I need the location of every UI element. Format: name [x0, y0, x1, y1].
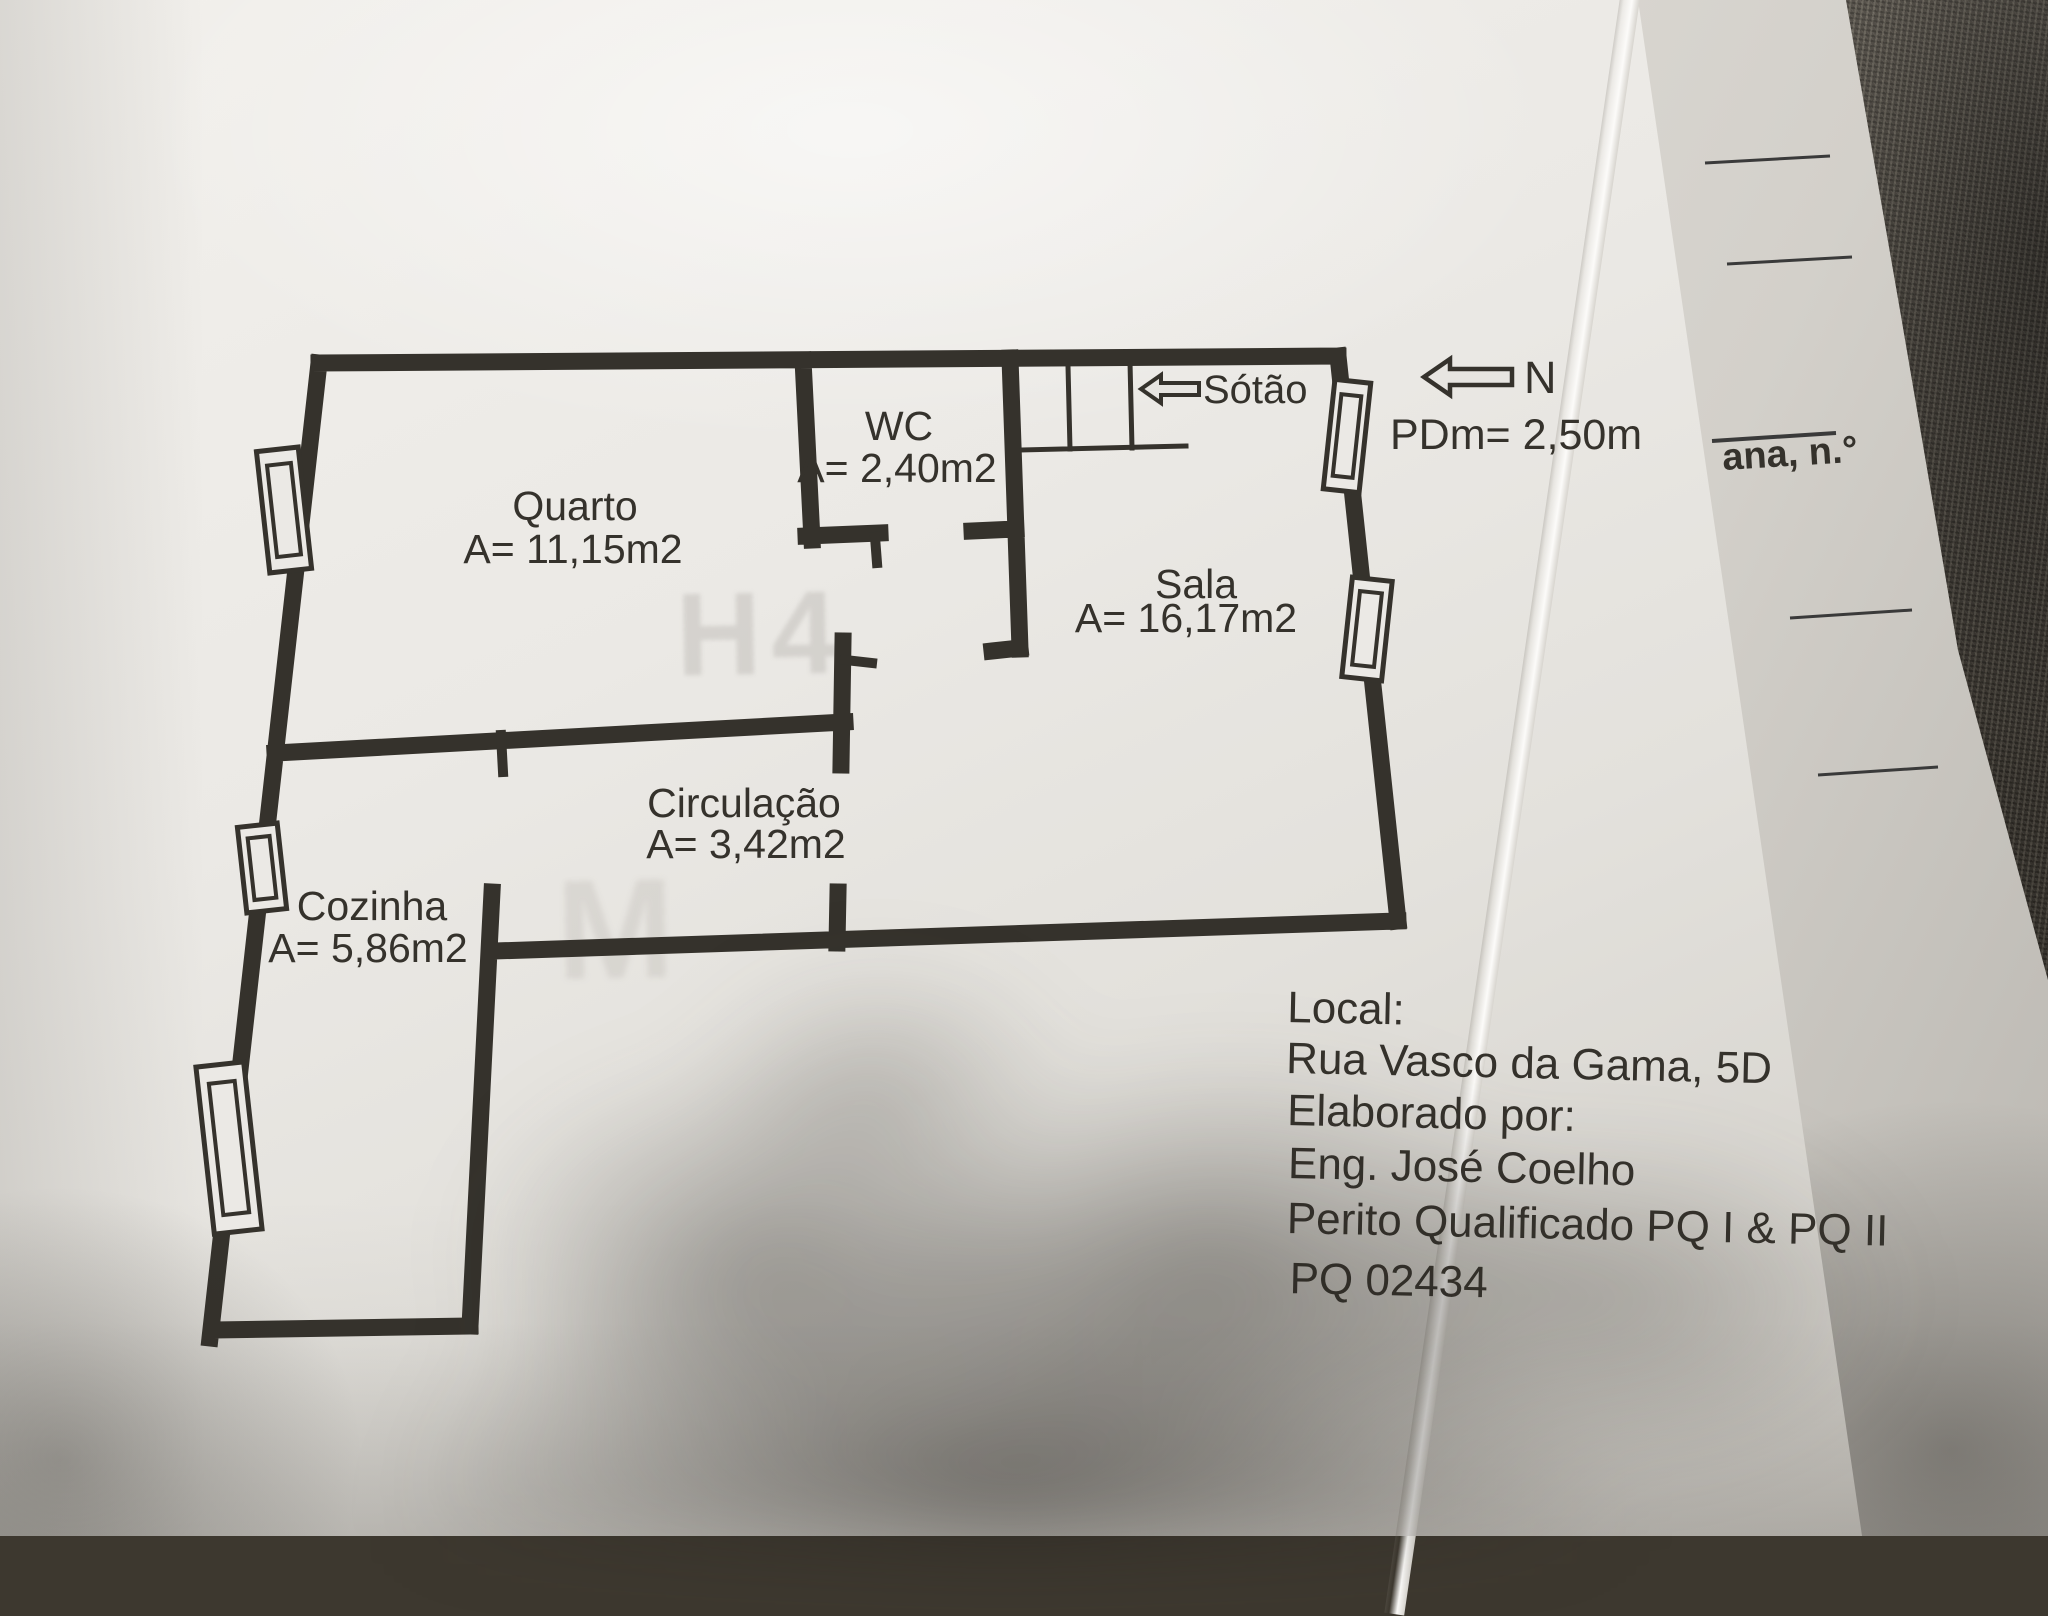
corner-shading-overlay	[0, 0, 2048, 1536]
photo-scene: H4 M	[0, 0, 2048, 1536]
